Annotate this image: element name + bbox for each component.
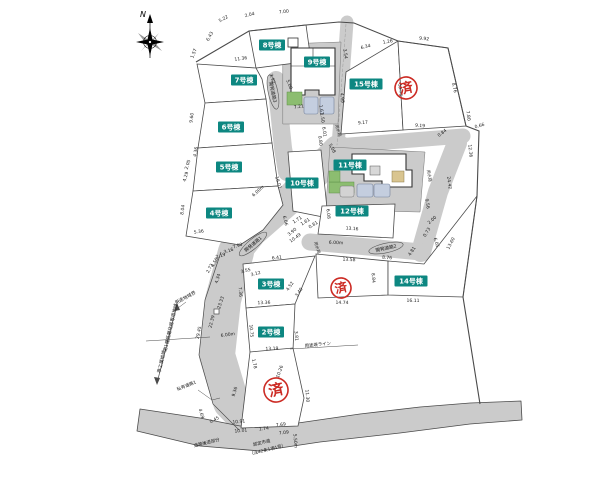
dimension-label: 6.43	[205, 31, 215, 43]
dimension-label: 7.69	[276, 421, 287, 428]
dimension-label: 6.00m	[329, 240, 344, 246]
lot-chip-label: 10号棟	[290, 179, 315, 188]
dimension-label: 9.17	[358, 120, 369, 127]
building-11-annex-gray	[370, 166, 380, 175]
zoning-arrowhead-bottom	[154, 377, 160, 385]
lot-chip-label: 9号棟	[308, 58, 328, 67]
shed-9	[288, 38, 298, 47]
lot-chip-label: 7号棟	[235, 76, 255, 85]
site-plan-page: N 開発道路1開発道路2開発道路3 用水路用水路用水路 5.222.047.00…	[0, 0, 600, 477]
dimension-label: 6.08	[324, 209, 331, 220]
parking-11-a	[357, 184, 373, 197]
zoning-boundary-label: 用途地域界	[174, 289, 198, 306]
compass-north-label: N	[140, 10, 146, 19]
waterway-label: 用水路	[426, 169, 434, 182]
compass-hub	[149, 41, 152, 44]
lot-chip-label: 3号棟	[262, 280, 282, 289]
dimension-label: 13.36	[257, 300, 270, 306]
dimension-label: 1.57	[189, 48, 198, 60]
annotation-label: 用途境ライン	[304, 340, 332, 350]
compass-needle-head	[147, 14, 153, 23]
dimension-label: 4.98	[338, 93, 345, 104]
road-east-branch	[337, 136, 463, 146]
site-plan-map: N 開発道路1開発道路2開発道路3 用水路用水路用水路 5.222.047.00…	[0, 0, 600, 477]
building-11-annex-tan	[392, 171, 404, 182]
parking-9-a	[304, 97, 318, 114]
dimension-label: 8.04	[179, 204, 186, 215]
dimension-label: 12.36	[466, 144, 473, 158]
lot-chip-label: 5号棟	[220, 163, 240, 172]
lot-chip-label: 11号棟	[338, 161, 363, 170]
dimension-label: 10.75	[248, 324, 255, 337]
dimension-label: 9.60	[188, 112, 195, 123]
dimension-label: 9.92	[419, 35, 430, 42]
dimension-label: 16.11	[407, 298, 420, 304]
dimension-label: 13.58	[342, 257, 355, 263]
dimension-label: 11.30	[304, 389, 311, 402]
dimension-label: 11.36	[234, 55, 248, 63]
dimension-label: 7.80	[464, 110, 471, 121]
dimension-label: 6.05	[432, 237, 441, 249]
dimension-label: 5.22	[218, 14, 230, 24]
annotation-label: 私有道路1	[176, 378, 198, 392]
zoning-labels: 用途地域界第1種低層住居専用地域準工業地域	[156, 289, 198, 374]
dimension-label: 7.09	[279, 429, 290, 436]
lot-chip-label: 6号棟	[222, 123, 242, 132]
dimension-label: 13.19	[265, 346, 278, 352]
dimension-label: 8.76	[382, 255, 393, 262]
lot-chip-label: 15号棟	[354, 80, 379, 89]
planting-11-b	[329, 171, 340, 182]
road-lot14-top	[310, 242, 421, 252]
dimension-label: 14.74	[336, 300, 349, 306]
dimension-label: 8.84	[370, 273, 377, 284]
dimension-label: 7.36	[237, 287, 244, 298]
dimension-label: 6.41	[272, 254, 283, 261]
dimension-label: 5.50m	[292, 434, 299, 449]
dimension-label: 13.16	[345, 226, 358, 233]
lot-chip-label: 4号棟	[210, 209, 230, 218]
dimension-label: 4.29	[182, 171, 191, 182]
dimension-label: 7.00	[279, 8, 290, 15]
dimension-label: 9.19	[415, 123, 426, 130]
lot-chip-label: 14号棟	[399, 277, 424, 286]
zoning-lower-label: 準工業地域	[156, 349, 168, 373]
dimension-label: 0.66	[474, 122, 485, 131]
dimension-label: 2.04	[244, 11, 255, 19]
dimension-label: 6.34	[360, 43, 371, 51]
parking-11-b	[374, 184, 390, 197]
dimension-label: 1.74	[259, 425, 270, 432]
lot-chip-label: 12号棟	[340, 207, 365, 216]
dimension-label: 2.05	[184, 159, 193, 171]
compass-icon: N	[136, 10, 164, 58]
survey-marker	[214, 309, 219, 314]
parking-11-gray	[340, 186, 354, 197]
zoning-upper-label: 第1種低層住居専用地域	[162, 303, 180, 353]
lot-chip-label: 8号棟	[263, 41, 283, 50]
planting-9	[287, 92, 302, 105]
lot-chip-label: 2号棟	[262, 328, 282, 337]
dimension-label: 3.81	[293, 331, 300, 342]
